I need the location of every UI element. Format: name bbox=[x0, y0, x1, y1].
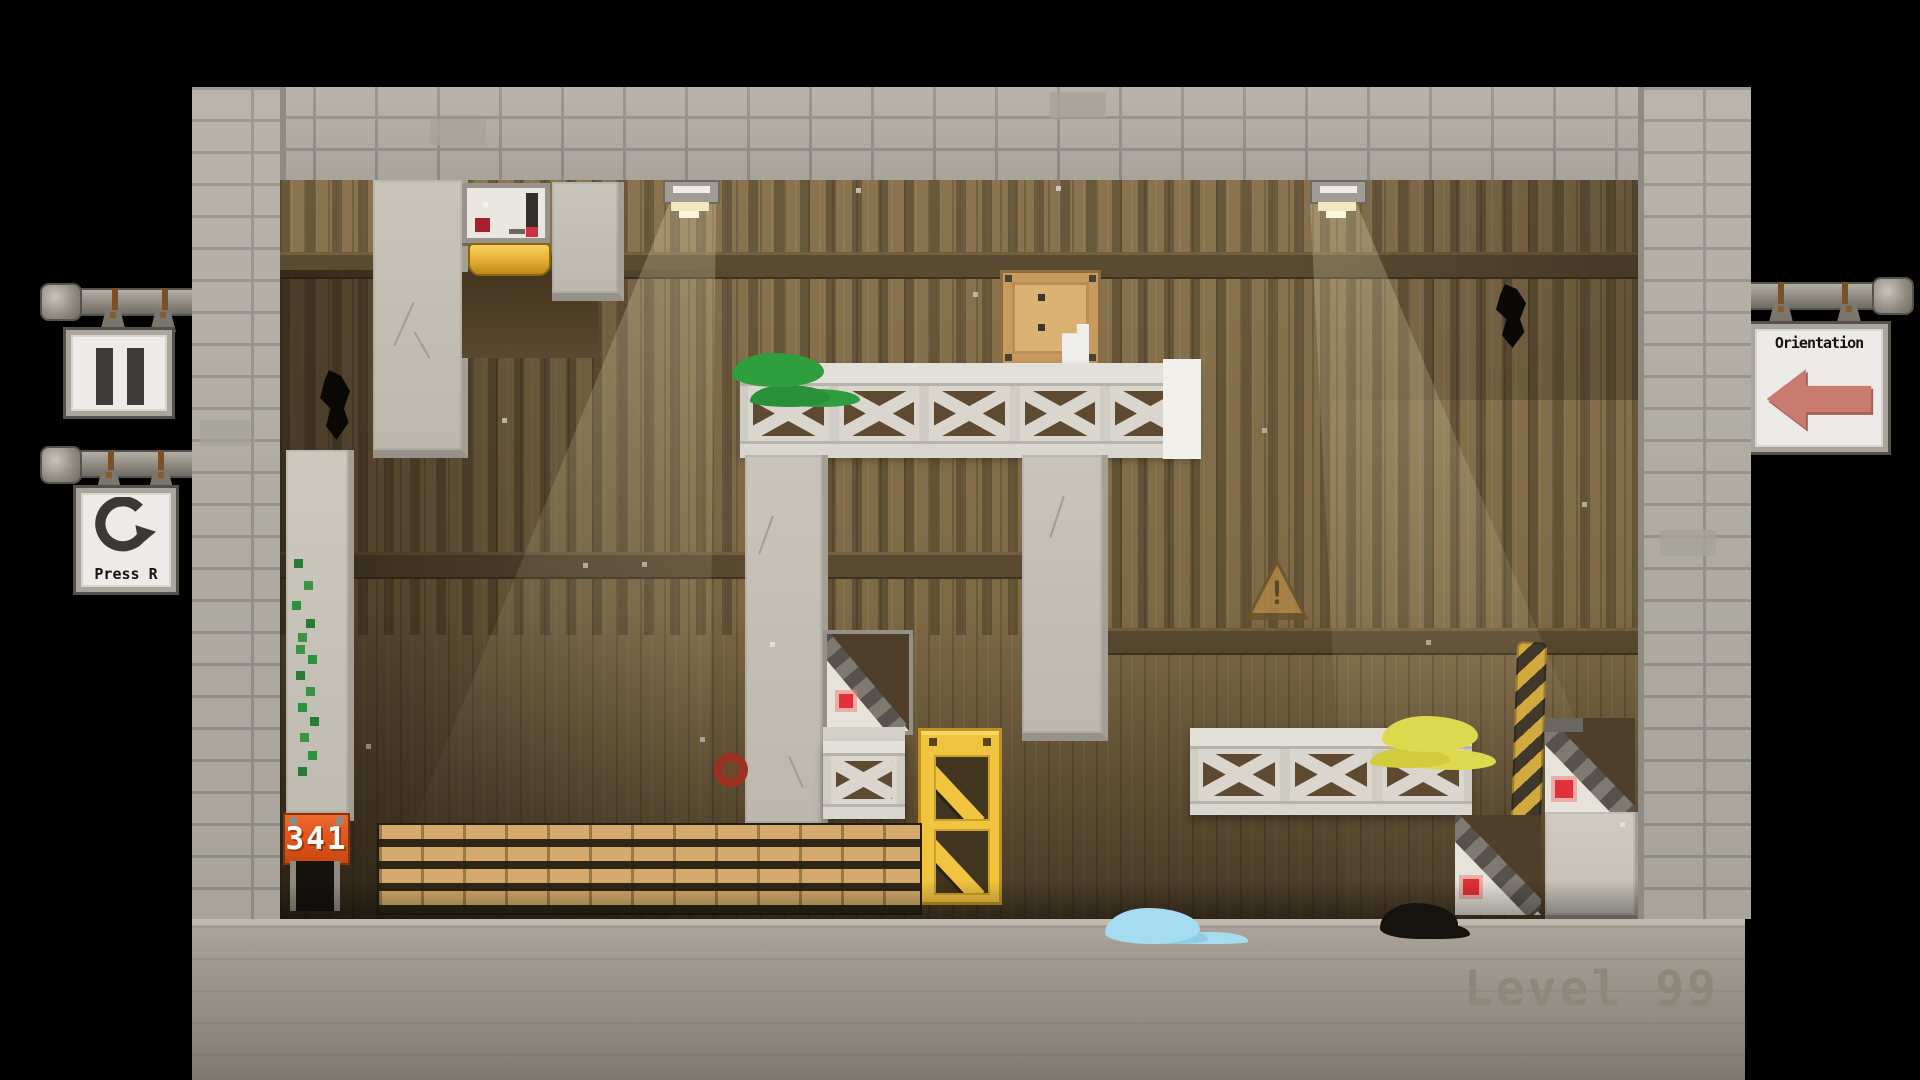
concrete-block bbox=[1545, 812, 1638, 919]
wall-beam bbox=[1102, 628, 1638, 655]
girder-barrier-upper[interactable] bbox=[740, 363, 1199, 455]
target-ring bbox=[714, 753, 748, 787]
dispenser-machine bbox=[462, 183, 550, 243]
yellow-moss bbox=[1382, 716, 1478, 752]
green-moss bbox=[732, 353, 824, 387]
orientation-sign-pipe bbox=[1738, 282, 1892, 310]
dust-particles bbox=[502, 418, 507, 423]
ramp-wedge[interactable] bbox=[1455, 815, 1541, 915]
wooden-bench bbox=[377, 823, 922, 915]
yellow-truss[interactable] bbox=[918, 728, 1002, 905]
pipe-rust-band bbox=[1842, 282, 1848, 306]
ceiling-light bbox=[1310, 180, 1367, 204]
stone-block-dark bbox=[1050, 92, 1106, 118]
room-interior: 341 ! bbox=[280, 180, 1638, 919]
room-wall-left bbox=[192, 87, 286, 919]
red-marker bbox=[1555, 780, 1573, 798]
game-viewport: Press R Orientation bbox=[0, 0, 1920, 1080]
level-label: Level 99 bbox=[1464, 961, 1719, 1017]
pipe-end-cap bbox=[40, 283, 82, 321]
machine-gauge bbox=[526, 193, 538, 237]
machine-vent bbox=[509, 229, 525, 234]
stone-block-dark bbox=[430, 119, 486, 145]
doorway-opening bbox=[290, 861, 340, 911]
stone-block-dark bbox=[200, 420, 250, 446]
room-wall-top bbox=[192, 87, 1745, 186]
red-marker bbox=[1463, 879, 1479, 895]
arrow-left-icon bbox=[1763, 359, 1875, 439]
concrete-block bbox=[552, 182, 624, 301]
floor-slab: Level 99 bbox=[192, 919, 1745, 1080]
wall-beam bbox=[280, 552, 1022, 579]
room-wall-right bbox=[1638, 87, 1751, 919]
pause-sign[interactable] bbox=[66, 330, 172, 416]
pipe-rust-band bbox=[1778, 282, 1784, 306]
vine-plant bbox=[296, 645, 305, 654]
pipe-rust-band bbox=[112, 288, 118, 312]
concrete-pillar-tall bbox=[373, 180, 468, 458]
concrete-column bbox=[286, 450, 354, 821]
pipe-rust-band bbox=[162, 288, 168, 312]
girder-barrier-lower[interactable] bbox=[1190, 728, 1472, 815]
restart-sign[interactable]: Press R bbox=[76, 488, 176, 592]
girder-block-single[interactable] bbox=[823, 741, 905, 819]
warning-triangle-decal: ! bbox=[1245, 558, 1309, 620]
restart-icon bbox=[95, 497, 157, 557]
pipe-end-cap bbox=[1872, 277, 1914, 315]
pipe-end-cap bbox=[40, 446, 82, 484]
crate-label-paper bbox=[1062, 324, 1089, 366]
ramp-wedge[interactable] bbox=[1545, 718, 1635, 812]
stone-block-dark bbox=[1660, 530, 1716, 556]
orientation-sign[interactable]: Orientation bbox=[1750, 324, 1888, 452]
concrete-pillar-left bbox=[745, 455, 828, 831]
girder-broken-end bbox=[1163, 359, 1201, 459]
orientation-sign-label: Orientation bbox=[1755, 334, 1883, 352]
ramp-wedge[interactable] bbox=[823, 630, 913, 735]
restart-sign-label: Press R bbox=[81, 565, 171, 583]
machine-red-indicator bbox=[475, 218, 490, 232]
gold-tray bbox=[468, 243, 551, 276]
red-marker bbox=[839, 694, 853, 708]
counter-sign: 341 bbox=[283, 813, 350, 865]
concrete-pillar-right bbox=[1022, 455, 1108, 741]
ceiling-light bbox=[663, 180, 720, 204]
white-shelf bbox=[823, 727, 905, 741]
wooden-crate[interactable] bbox=[1003, 273, 1098, 363]
